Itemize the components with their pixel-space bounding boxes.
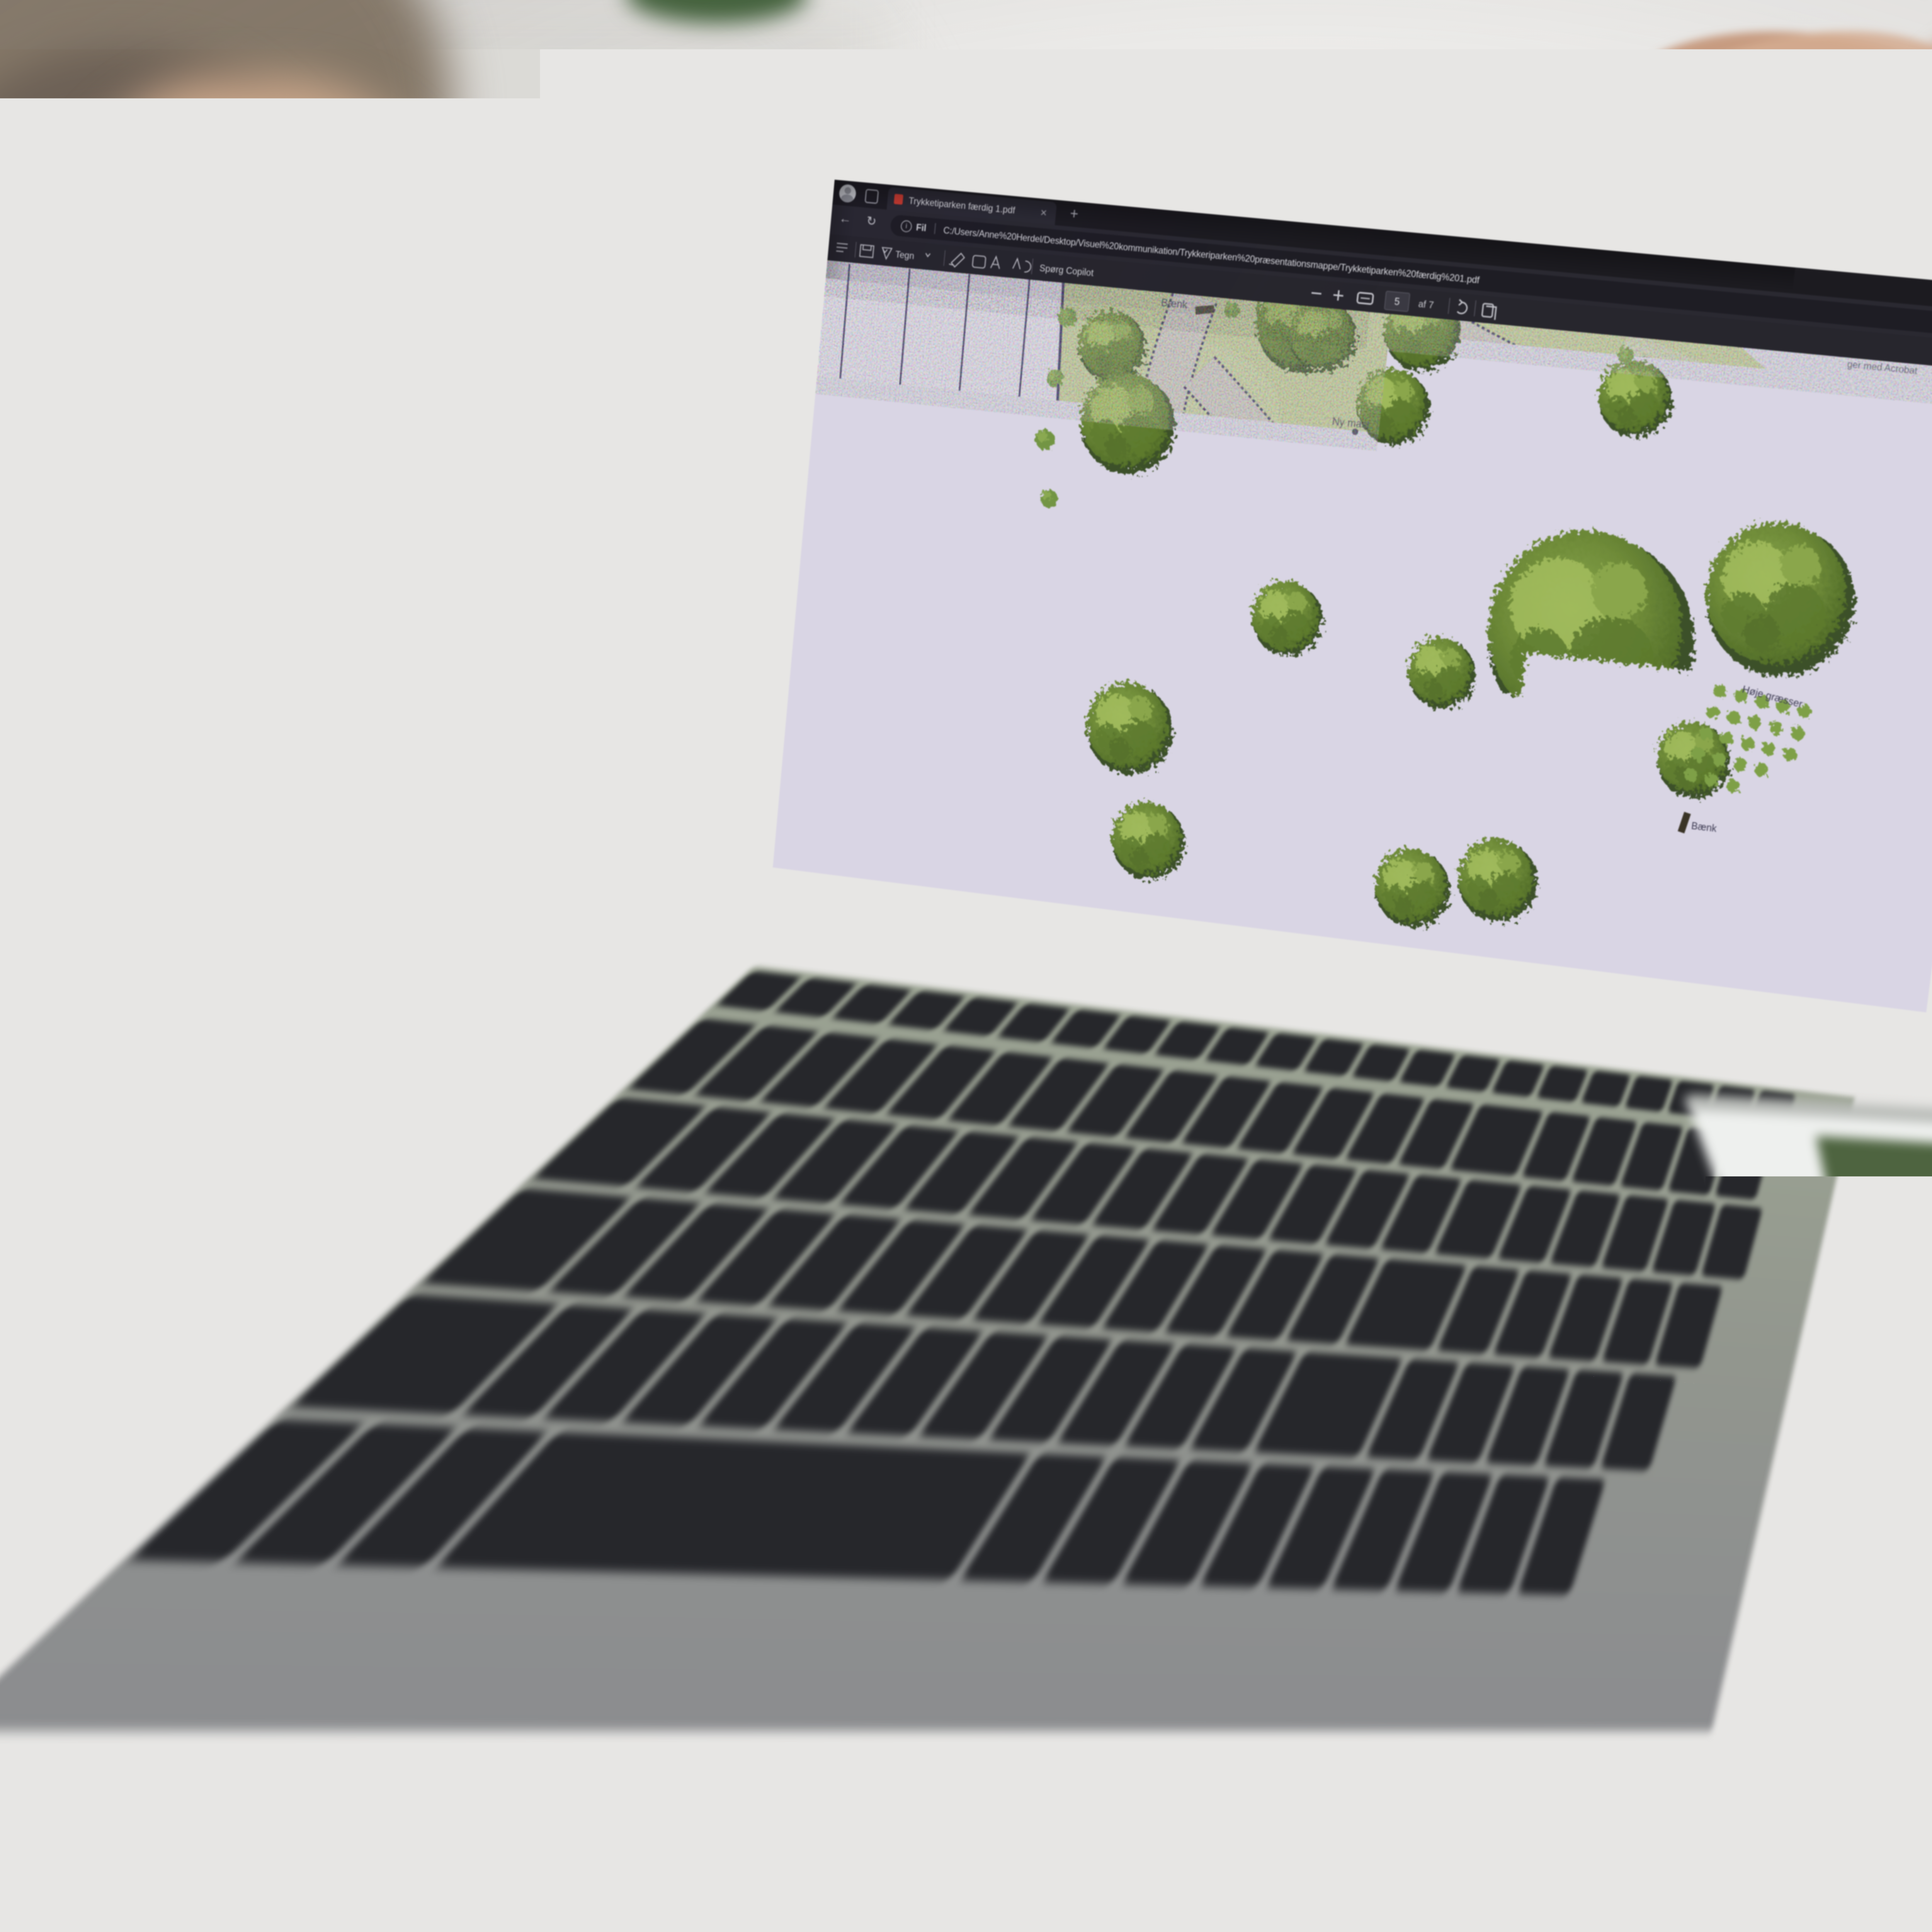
svg-text:10: 10 bbox=[826, 889, 861, 923]
svg-text:HD: HD bbox=[765, 892, 794, 916]
